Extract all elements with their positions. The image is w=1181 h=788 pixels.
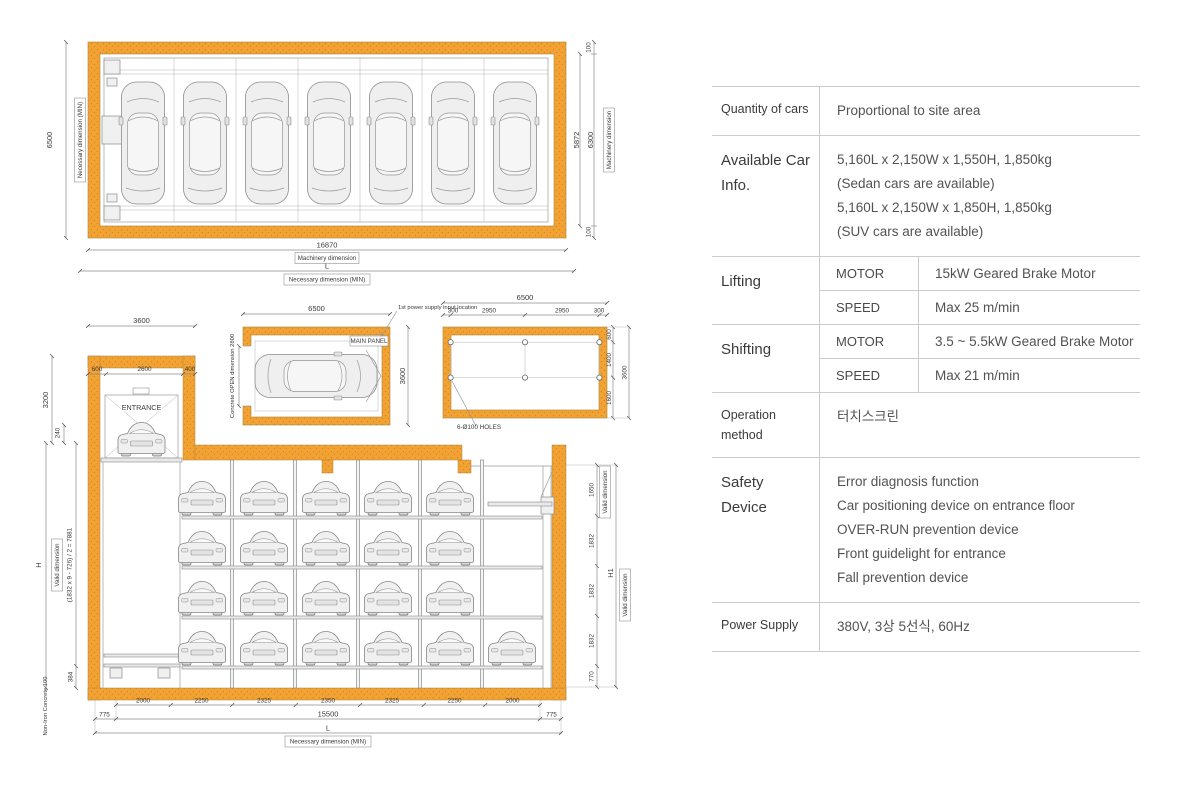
- spec-table: Quantity of cars Proportional to site ar…: [712, 86, 1140, 652]
- lift-shaft: [103, 462, 180, 688]
- table-row-shifting: Shifting MOTOR 3.5 ~ 5.5kW Geared Brake …: [712, 324, 1140, 392]
- car-top-icon: [491, 82, 539, 204]
- dim-offset-right: 775: [546, 712, 557, 719]
- dim-tower-floor: 240: [55, 427, 62, 438]
- value-line: Car positioning device on entrance floor: [837, 494, 1132, 518]
- dim-bay: 2350: [321, 698, 336, 705]
- row-value: Error diagnosis function Car positioning…: [820, 458, 1140, 602]
- car-front-icon: [241, 632, 288, 666]
- dim-valid-left-label: Valid dimension: [52, 539, 63, 591]
- car-front-icon: [179, 582, 226, 616]
- dim-plan-inner-depth: 5872: [572, 132, 581, 149]
- car-front-icon: [179, 532, 226, 566]
- car-front-icon: [365, 632, 412, 666]
- sub-value: Max 25 m/min: [919, 291, 1140, 324]
- car-front-icon: [427, 632, 474, 666]
- car-front-icon: [303, 532, 350, 566]
- svg-text:Valid dimension: Valid dimension: [54, 543, 61, 587]
- svg-text:Necessary dimension (MIN): Necessary dimension (MIN): [77, 102, 84, 178]
- row-label: Available Car Info.: [712, 136, 820, 256]
- dim-pit-depth: 3600: [398, 368, 407, 385]
- car-front-icon: [427, 482, 474, 516]
- row-label: Lifting: [712, 257, 820, 324]
- sub-row: MOTOR 15kW Geared Brake Motor: [820, 257, 1140, 290]
- dim-bay: 2325: [385, 698, 400, 705]
- car-top-icon: [255, 352, 377, 400]
- foundation-plan-diagram: 6500 300 2950 2950 300 600 1400 1600 360…: [443, 293, 629, 431]
- dim-foundation-sub: 2950: [482, 308, 497, 315]
- dim-elevation-H: H: [34, 562, 43, 567]
- sub-key: MOTOR: [820, 257, 919, 290]
- dim-necessary-label: Necessary dimension (MIN): [285, 736, 371, 747]
- dim-elevation-right: 1832: [589, 534, 596, 549]
- entrance-bay: ENTRANCE: [101, 388, 182, 462]
- car-front-icon: [303, 582, 350, 616]
- holes-label: 6-Ø100 HOLES: [457, 424, 501, 431]
- dim-elevation-H1: H1: [606, 568, 615, 578]
- sub-key: MOTOR: [820, 325, 919, 358]
- dim-bay: 2000: [505, 698, 520, 705]
- value-line: Fall prevention device: [837, 566, 1132, 590]
- car-front-icon: [427, 532, 474, 566]
- dim-foundation-right: 600: [606, 329, 613, 340]
- dim-concrete-open: Concrete OPEN dimension 2800: [230, 334, 236, 418]
- value-line: 5,160L x 2,150W x 1,850H, 1,850kg: [837, 196, 1132, 220]
- dim-bay: 2000: [136, 698, 151, 705]
- dim-total-width: 15500: [318, 710, 339, 719]
- sub-value: Max 21 m/min: [919, 359, 1140, 392]
- car-front-icon: [303, 632, 350, 666]
- table-row-operation: Operation method 터치스크린: [712, 392, 1140, 457]
- dim-overall-L: L: [326, 724, 330, 733]
- svg-text:Machinery dimension: Machinery dimension: [606, 110, 613, 169]
- dim-elevation-right: 1832: [589, 634, 596, 649]
- table-row-power: Power Supply 380V, 3상 5선식, 60Hz: [712, 602, 1140, 651]
- dim-valid-right2-label: Valid dimension: [620, 569, 631, 621]
- value-line: (Sedan cars are available): [837, 172, 1132, 196]
- dim-foundation-sub: 300: [594, 308, 605, 315]
- dim-offset-left: 775: [99, 712, 110, 719]
- value-line: OVER-RUN prevention device: [837, 518, 1132, 542]
- row-label: Quantity of cars: [712, 87, 820, 135]
- dim-elevation-right: 1832: [589, 584, 596, 599]
- car-top-icon: [367, 82, 415, 204]
- row-label: Shifting: [712, 325, 820, 392]
- plan-view-diagram: 6500 Necessary dimension (MIN) 100 100 5…: [45, 42, 615, 285]
- sub-row: SPEED Max 25 m/min: [820, 290, 1140, 324]
- sub-value: 3.5 ~ 5.5kW Geared Brake Motor: [919, 325, 1140, 358]
- value-line: (SUV cars are available): [837, 220, 1132, 244]
- car-front-icon: [241, 582, 288, 616]
- row-value: 380V, 3상 5선식, 60Hz: [820, 603, 1140, 651]
- car-top-icon: [181, 82, 229, 204]
- power-supply-note: 1st power supply input location: [398, 305, 477, 311]
- dim-foundation-right: 1400: [606, 353, 613, 368]
- svg-text:Valid dimension: Valid dimension: [622, 573, 629, 617]
- sub-key: SPEED: [820, 359, 919, 392]
- row-label: Safety Device: [712, 458, 820, 602]
- car-front-icon: [118, 423, 165, 457]
- dim-pit-width: 6500: [308, 304, 325, 313]
- dim-plan-machinery-label: Machinery dimension: [604, 108, 615, 172]
- car-front-icon: [303, 482, 350, 516]
- table-row-quantity: Quantity of cars Proportional to site ar…: [712, 86, 1140, 135]
- value-line: 5,160L x 2,150W x 1,550H, 1,850kg: [837, 148, 1132, 172]
- svg-text:Necessary dimension (MIN): Necessary dimension (MIN): [290, 739, 366, 746]
- table-row-safety: Safety Device Error diagnosis function C…: [712, 457, 1140, 602]
- dim-plan-depth-label: Necessary dimension (MIN): [75, 98, 86, 182]
- car-front-icon: [241, 532, 288, 566]
- dim-plan-necessary-label: Necessary dimension (MIN): [284, 274, 370, 285]
- car-top-icon: [429, 82, 477, 204]
- dim-elevation-right: 1650: [589, 483, 596, 498]
- car-front-icon: [489, 632, 536, 666]
- dim-foundation-width: 6500: [517, 293, 534, 302]
- car-front-icon: [365, 482, 412, 516]
- dim-valid-right-label: Valid dimension: [600, 466, 611, 518]
- dim-tower-sub: 2600: [137, 366, 152, 373]
- car-front-icon: [427, 582, 474, 616]
- car-front-icon: [179, 632, 226, 666]
- dim-foundation-right: 1600: [606, 391, 613, 406]
- sub-key: SPEED: [820, 291, 919, 324]
- dim-tower-sub: 600: [92, 366, 103, 373]
- value-line: Error diagnosis function: [837, 470, 1132, 494]
- dim-bay: 2325: [257, 698, 272, 705]
- sub-row: MOTOR 3.5 ~ 5.5kW Geared Brake Motor: [820, 325, 1140, 358]
- dim-elevation-formula: (1832 x 9 - 726) / 2 = 7881: [67, 527, 74, 602]
- dim-elevation-right: 770: [589, 671, 596, 682]
- table-row-available-car: Available Car Info. 5,160L x 2,150W x 1,…: [712, 135, 1140, 256]
- car-front-icon: [365, 582, 412, 616]
- row-value: 5,160L x 2,150W x 1,550H, 1,850kg (Sedan…: [820, 136, 1140, 256]
- dim-plan-width: 16870: [317, 241, 338, 250]
- car-front-icon: [179, 482, 226, 516]
- dim-tower-height: 3200: [41, 392, 50, 409]
- row-label: Operation method: [712, 393, 820, 457]
- value-line: Front guidelight for entrance: [837, 542, 1132, 566]
- dim-plan-offset-top: 100: [586, 42, 593, 53]
- dim-bay: 2250: [447, 698, 462, 705]
- dim-plan-outer-depth: 6300: [586, 132, 595, 149]
- dim-foundation-sub: 300: [448, 308, 459, 315]
- svg-text:MAIN PANEL: MAIN PANEL: [350, 338, 388, 345]
- pit-plan-diagram: MAIN PANEL 1st power supply input locati…: [230, 304, 477, 425]
- dim-elevation-floor: 384: [68, 671, 75, 682]
- pit-car: [255, 352, 377, 400]
- dim-foundation-total-depth: 3600: [622, 365, 629, 380]
- car-front-icon: [365, 532, 412, 566]
- dim-plan-offset-bottom: 100: [586, 226, 593, 237]
- entrance-label: ENTRANCE: [122, 403, 162, 412]
- svg-text:Valid dimension: Valid dimension: [602, 470, 609, 514]
- technical-drawings: 6500 Necessary dimension (MIN) 100 100 5…: [0, 0, 700, 788]
- sub-row: SPEED Max 21 m/min: [820, 358, 1140, 392]
- concrete-note: Non-Iron Concrete 100: [43, 677, 49, 736]
- dim-foundation-sub: 2950: [555, 308, 570, 315]
- dim-tower-width: 3600: [133, 316, 150, 325]
- car-front-icon: [241, 482, 288, 516]
- dim-plan-L: L: [325, 262, 329, 271]
- car-top-icon: [243, 82, 291, 204]
- dim-bay: 2250: [194, 698, 209, 705]
- sub-value: 15kW Geared Brake Motor: [919, 257, 1140, 290]
- row-label: Power Supply: [712, 603, 820, 651]
- main-panel-label: MAIN PANEL: [350, 336, 388, 346]
- dim-tower-sub: 400: [185, 366, 196, 373]
- row-value: Proportional to site area: [820, 87, 1140, 135]
- row-value: 터치스크린: [820, 393, 1140, 457]
- table-row-lifting: Lifting MOTOR 15kW Geared Brake Motor SP…: [712, 256, 1140, 324]
- svg-text:Necessary dimension (MIN): Necessary dimension (MIN): [289, 277, 365, 284]
- car-top-icon: [305, 82, 353, 204]
- dim-plan-depth: 6500: [45, 132, 54, 149]
- car-top-icon: [119, 82, 167, 204]
